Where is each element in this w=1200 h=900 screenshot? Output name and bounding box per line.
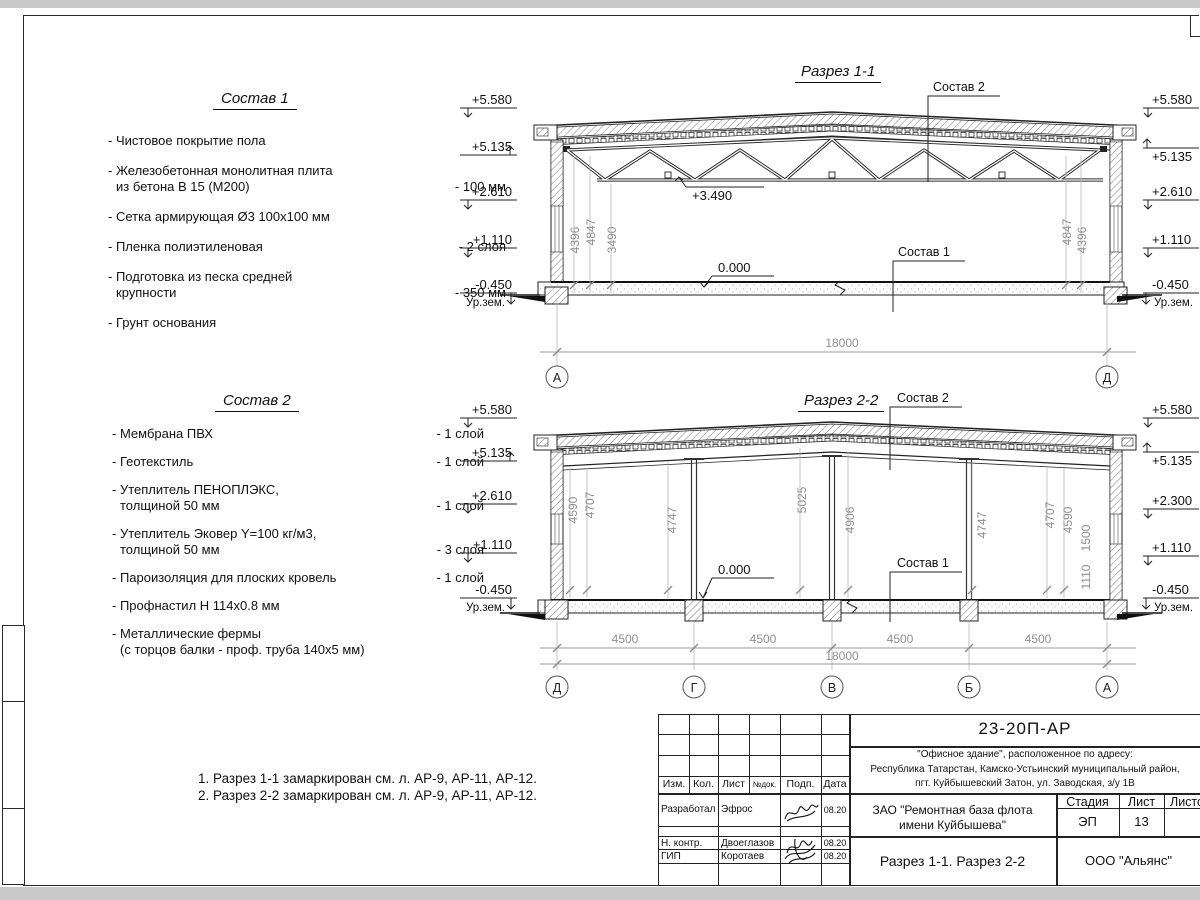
bottom-dimension: 4500 4500 4500 4500 18000 Д Г В Б А [540, 622, 1136, 698]
note-line: 1. Разрез 1-1 замаркирован см. л. АР-9, … [198, 770, 537, 787]
axis-label: Д [1103, 371, 1112, 385]
level-text: +3.490 [692, 188, 732, 203]
tb-name: Коротаев [721, 851, 781, 862]
walls [551, 140, 1122, 290]
edge-stamp-cell [2, 808, 25, 885]
signature-icon [785, 839, 815, 863]
dim-text: 4847 [584, 218, 598, 245]
client-line: имени Куйбышева" [849, 818, 1056, 833]
tb-col-podp: Подп. [780, 778, 821, 790]
level-text: +1.110 [1152, 232, 1191, 247]
format-box [1190, 15, 1200, 37]
tb-col-list: Лист [718, 778, 749, 790]
list-item: - Утеплитель ПЕНОПЛЭКС,толщиной 50 мм- 1… [112, 482, 484, 514]
level-text: -0.450 [475, 582, 512, 597]
item-text: - Утеплитель Эковер Y=100 кг/м3, [112, 526, 316, 542]
inner-levels: +3.490 0.000 [675, 177, 774, 287]
tb-document-code: 23-20П-АР [849, 719, 1200, 739]
title-block: Изм. Кол. Лист №док. Подп. Дата Разработ… [658, 714, 1200, 886]
dim-text: 4396 [568, 226, 582, 253]
address-line: Республика Татарстан, Камско-Устьинский … [849, 763, 1200, 778]
section1-title: Разрез 1-1 [795, 63, 881, 83]
item-text: крупности [108, 285, 292, 301]
level-text: -0.450 [475, 277, 512, 292]
tb-date: 08.20 [821, 838, 849, 848]
extension-lines [566, 448, 1068, 598]
edge-stamp-cell [2, 701, 25, 810]
tb-col-ndok: №док. [749, 780, 780, 789]
tb-sheet-label: Лист [1119, 795, 1164, 809]
ground-label: Ур.зем. [1154, 602, 1193, 614]
tb-address: "Офисное здание", расположенное по адрес… [849, 748, 1200, 792]
tb-date: 08.20 [821, 851, 849, 861]
dim-text: 4590 [566, 496, 580, 523]
item-text: из бетона В 15 (М200) [108, 179, 333, 195]
level-text: -0.450 [1152, 582, 1189, 597]
level-text: +2.610 [472, 488, 512, 503]
level-text: 0.000 [718, 562, 751, 577]
tb-role: Н. контр. [661, 838, 717, 849]
note-line: 2. Разрез 2-2 замаркирован см. л. АР-9, … [198, 787, 537, 804]
level-text: +5.135 [1152, 149, 1192, 164]
item-text: - Металлические фермы [112, 626, 365, 642]
address-line: "Офисное здание", расположенное по адрес… [849, 748, 1200, 763]
notes: 1. Разрез 1-1 замаркирован см. л. АР-9, … [198, 770, 537, 804]
level-marks-right: +5.580 +5.135 +2.610 +1.110 -0.450 Ур.зе… [1142, 92, 1199, 309]
list-item: - Мембрана ПВХ- 1 слой [112, 426, 484, 442]
dim-text: 4500 [1025, 632, 1052, 646]
list-item: - Утеплитель Эковер Y=100 кг/м3,толщиной… [112, 526, 484, 558]
tb-organization: ООО "Альянс" [1056, 853, 1200, 868]
axis-label: Б [965, 681, 973, 695]
dim-text: 4707 [1043, 501, 1057, 528]
level-marks-right: +5.580 +5.135 +2.300 +1.110 -0.450 Ур.зе… [1142, 402, 1199, 614]
sostav1-title: Состав 1 [213, 90, 297, 110]
level-text: +1.110 [473, 232, 512, 247]
item-text: - Железобетонная монолитная плита [108, 163, 333, 179]
client-line: ЗАО "Ремонтная база флота [849, 803, 1056, 818]
dim-text: 4847 [1060, 218, 1074, 245]
level-text: +1.110 [1152, 540, 1191, 555]
level-text: +5.135 [472, 139, 512, 154]
signature-icon [785, 805, 818, 821]
bottom-dimension: 18000 А Д [540, 300, 1136, 388]
level-text: +5.135 [1152, 453, 1192, 468]
item-text: - Профнастил Н 114х0.8 мм [112, 598, 280, 614]
tb-role: Разработал [661, 804, 717, 815]
section2-title: Разрез 2-2 [798, 392, 884, 412]
item-text: - Сетка армирующая Ø3 100х100 мм [108, 209, 330, 225]
leader-text: Состав 2 [897, 391, 949, 405]
axis-label: Г [691, 681, 698, 695]
walls [551, 450, 1122, 600]
tb-role: ГИП [661, 851, 717, 862]
level-text: +2.300 [1152, 493, 1192, 508]
item-text: - Пленка полиэтиленовая [108, 239, 263, 255]
ground-label: Ур.зем. [466, 297, 505, 309]
dim-text: 1500 [1079, 524, 1093, 551]
level-marks-left: +5.580 +5.135 +2.610 +1.110 -0.450 Ур.зе… [460, 92, 517, 309]
leader-text: Состав 1 [897, 556, 949, 570]
level-text: +5.580 [472, 92, 512, 107]
axis-label: Д [553, 681, 562, 695]
level-text: +5.580 [1152, 402, 1192, 417]
dim-text: 1110 [1079, 564, 1093, 589]
item-text: - Утеплитель ПЕНОПЛЭКС, [112, 482, 279, 498]
item-text: - Пароизоляция для плоских кровель [112, 570, 336, 586]
item-text: - Грунт основания [108, 315, 216, 331]
address-line: пгт. Куйбышевский Затон, ул. Заводская, … [849, 777, 1200, 792]
dim-text: 4500 [612, 632, 639, 646]
dim-text: 4500 [887, 632, 914, 646]
item-text: - Чистовое покрытие пола [108, 133, 266, 149]
dim-text: 4747 [665, 506, 679, 533]
dim-text: 4396 [1075, 226, 1089, 253]
list-item: - Профнастил Н 114х0.8 мм [112, 598, 484, 614]
list-item: - Пароизоляция для плоских кровель- 1 сл… [112, 570, 484, 586]
section-2-2-drawing: 4590 4707 4747 5025 4906 4747 4707 4590 … [440, 388, 1200, 710]
level-text: +5.580 [1152, 92, 1192, 107]
tb-col-kol: Кол. [689, 778, 718, 790]
tb-name: Эфрос [721, 804, 779, 815]
tb-sheet-value: 13 [1119, 814, 1164, 829]
dim-text: 4500 [750, 632, 777, 646]
dim-text: 18000 [825, 649, 859, 663]
item-text: толщиной 50 мм [112, 542, 316, 558]
level-text: +5.135 [472, 445, 512, 460]
inner-levels: 0.000 [699, 562, 774, 598]
ground-label: Ур.зем. [466, 602, 505, 614]
tb-col-izm: Изм. [659, 778, 689, 790]
axis-label: А [1103, 681, 1112, 695]
tb-sheets-label: Листов [1164, 795, 1200, 809]
level-text: -0.450 [1152, 277, 1189, 292]
item-text: - Подготовка из песка средней [108, 269, 292, 285]
dim-text: 4707 [583, 491, 597, 518]
list-item: - Геотекстиль- 1 слой [112, 454, 484, 470]
tb-client: ЗАО "Ремонтная база флота имени Куйбышев… [849, 803, 1056, 833]
tb-doc-title: Разрез 1-1. Разрез 2-2 [849, 853, 1056, 869]
item-text: толщиной 50 мм [112, 498, 279, 514]
axis-label: В [828, 681, 836, 695]
item-text: - Мембрана ПВХ [112, 426, 213, 442]
leader-text: Состав 1 [898, 245, 950, 259]
dim-text: 4906 [843, 506, 857, 533]
level-text: +5.580 [472, 402, 512, 417]
section-1-1-drawing: 4396 4847 3490 4847 4396 +5.580 +5.135 +… [440, 55, 1200, 390]
dim-text: 4747 [975, 511, 989, 538]
floor-slab [500, 599, 1162, 621]
item-text: - Геотекстиль [112, 454, 193, 470]
tb-stage-value: ЭП [1056, 814, 1119, 829]
dim-text: 3490 [605, 226, 619, 253]
level-text: +2.610 [1152, 184, 1192, 199]
tb-stage-label: Стадия [1056, 795, 1119, 809]
drawing-sheet: { "colors": {"ink": "#1a1a1a", "dim_text… [0, 0, 1200, 900]
level-text: 0.000 [718, 260, 751, 275]
tb-col-data: Дата [821, 778, 849, 790]
leader-text: Состав 2 [933, 80, 985, 94]
level-marks-left: +5.580 +5.135 +2.610 +1.110 -0.450 Ур.зе… [460, 402, 517, 614]
axis-label: А [553, 371, 562, 385]
sostav2-list: - Мембрана ПВХ- 1 слой - Геотекстиль- 1 … [112, 426, 484, 670]
item-text: (с торцов балки - проф. труба 140х5 мм) [112, 642, 365, 658]
ground-label: Ур.зем. [1154, 297, 1193, 309]
tb-date: 08.20 [821, 805, 849, 815]
edge-stamp-cell [2, 625, 25, 703]
list-item: - Металлические фермы(с торцов балки - п… [112, 626, 484, 658]
floor-slab [500, 281, 1162, 304]
roof [534, 112, 1136, 150]
extension-lines [570, 156, 1085, 293]
level-text: +1.110 [473, 537, 512, 552]
dim-text: 4590 [1061, 506, 1075, 533]
tb-name: Двоеглазов [721, 838, 781, 849]
sostav2-title: Состав 2 [215, 392, 299, 412]
signature-marks [781, 795, 821, 867]
roof-truss [567, 138, 1103, 180]
level-text: +2.610 [472, 184, 512, 199]
dim-text: 18000 [825, 336, 859, 350]
vertical-dimensions: 4396 4847 3490 4847 4396 [568, 218, 1089, 253]
dim-text: 5025 [795, 486, 809, 513]
